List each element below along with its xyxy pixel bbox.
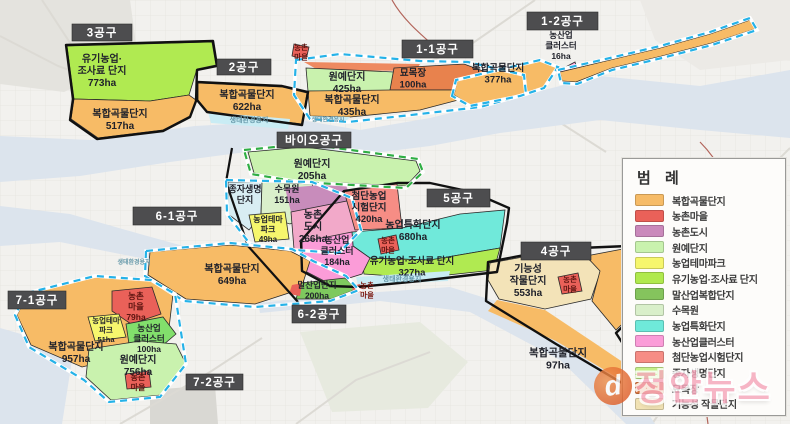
legend-swatch — [635, 398, 664, 410]
legend-item: 복합곡물단지 — [635, 193, 777, 207]
legend-swatch — [635, 257, 664, 269]
zone-village-79-label: 농촌마을79ha — [126, 291, 146, 322]
zone-village-north-label: 농촌마을 — [294, 42, 308, 62]
zone-horticulture-425-label: 원예단지425ha — [329, 70, 366, 95]
legend-item-label: 수목원 — [672, 302, 699, 317]
zone-horticulture-205-label: 원예단지205ha — [294, 157, 331, 182]
section-label-5공구: 5공구 — [443, 192, 474, 205]
section-label-1-2공구: 1-2공구 — [541, 15, 584, 28]
section-label-3공구: 3공구 — [87, 27, 118, 40]
legend-item: 농업특화단지 — [635, 319, 777, 333]
legend-item: 농촌도시 — [635, 224, 777, 238]
section-label-4공구: 4공구 — [541, 245, 572, 258]
legend-item: 묘목장 — [635, 381, 777, 395]
legend-rows: 복합곡물단지농촌마을농촌도시원예단지농업테마파크유기농업·조사료 단지말산업복합… — [635, 193, 777, 411]
legend-item: 기능성 작물단지 — [635, 397, 777, 411]
legend-swatch — [635, 304, 664, 316]
legend-swatch — [635, 225, 664, 237]
legend-item: 유기농업·조사료 단지 — [635, 271, 777, 285]
section-label-1-1공구: 1-1공구 — [416, 43, 459, 56]
legend: 범 례 복합곡물단지농촌마을농촌도시원예단지농업테마파크유기농업·조사료 단지말… — [622, 158, 786, 416]
legend-item-label: 첨단농업시험단지 — [672, 349, 743, 364]
zone-hightech-420-label: 첨단농업시험단지420ha — [352, 190, 387, 225]
legend-item: 첨단농업시험단지 — [635, 350, 777, 364]
legend-title: 범 례 — [637, 167, 777, 188]
zone-nursery-100-label: 묘목장100ha — [400, 67, 428, 91]
legend-swatch — [635, 288, 664, 300]
legend-swatch — [635, 351, 664, 363]
section-label-7-1공구: 7-1공구 — [16, 294, 59, 307]
legend-swatch — [635, 320, 664, 332]
section-label-바이오공구: 바이오공구 — [285, 133, 343, 147]
legend-swatch — [635, 367, 664, 379]
legend-swatch — [635, 241, 664, 253]
legend-item: 농산업클러스터 — [635, 334, 777, 348]
zone-functional-553-label: 기능성작물단지553ha — [510, 262, 547, 299]
legend-swatch — [635, 272, 664, 284]
zone-cluster-184-label: 농산업클러스터184ha — [320, 234, 353, 267]
legend-item-label: 농산업클러스터 — [672, 334, 734, 349]
legend-item: 농업테마파크 — [635, 256, 777, 270]
legend-item-label: 농촌도시 — [672, 224, 708, 239]
legend-swatch — [635, 194, 664, 206]
legend-item: 농촌마을 — [635, 209, 777, 223]
section-label-2공구: 2공구 — [229, 61, 260, 74]
legend-item-label: 복합곡물단지 — [672, 193, 725, 208]
zone-eco-strip-1-1-label: 생태환경용지 — [311, 116, 344, 124]
zone-cluster-100-label: 농산업클러스터100ha — [133, 323, 164, 354]
legend-item-label: 농촌마을 — [672, 208, 708, 223]
legend-item-label: 유기농업·조사료 단지 — [672, 271, 758, 286]
legend-item: 수목원 — [635, 303, 777, 317]
legend-item-label: 농업테마파크 — [672, 255, 725, 270]
label-eco-west: 생태환경용지 — [117, 258, 150, 266]
section-label-7-2공구: 7-2공구 — [193, 376, 236, 389]
legend-item-label: 종자생명단지 — [672, 365, 725, 380]
zone-village-4-label: 농촌마을 — [563, 274, 577, 294]
legend-item: 말산업복합단지 — [635, 287, 777, 301]
legend-item-label: 원예단지 — [672, 240, 708, 255]
legend-swatch — [635, 335, 664, 347]
section-label-6-2공구: 6-2공구 — [298, 308, 341, 321]
legend-item-label: 기능성 작물단지 — [672, 396, 737, 411]
zone-eco-strip-2-label: 생태환경용지 — [230, 115, 269, 124]
legend-item-label: 농업특화단지 — [672, 318, 725, 333]
legend-swatch — [635, 210, 664, 222]
legend-item-label: 묘목장 — [672, 381, 699, 396]
zone-village-5-label: 농촌마을 — [381, 235, 395, 255]
zone-eco-strip-5-label: 생태환경용지 — [383, 274, 422, 283]
legend-item: 원예단지 — [635, 240, 777, 254]
legend-item-label: 말산업복합단지 — [672, 287, 734, 302]
legend-item: 종자생명단지 — [635, 366, 777, 380]
section-label-6-1공구: 6-1공구 — [156, 210, 199, 223]
legend-swatch — [635, 382, 664, 394]
label-village-horse: 농촌마을 — [360, 280, 374, 300]
